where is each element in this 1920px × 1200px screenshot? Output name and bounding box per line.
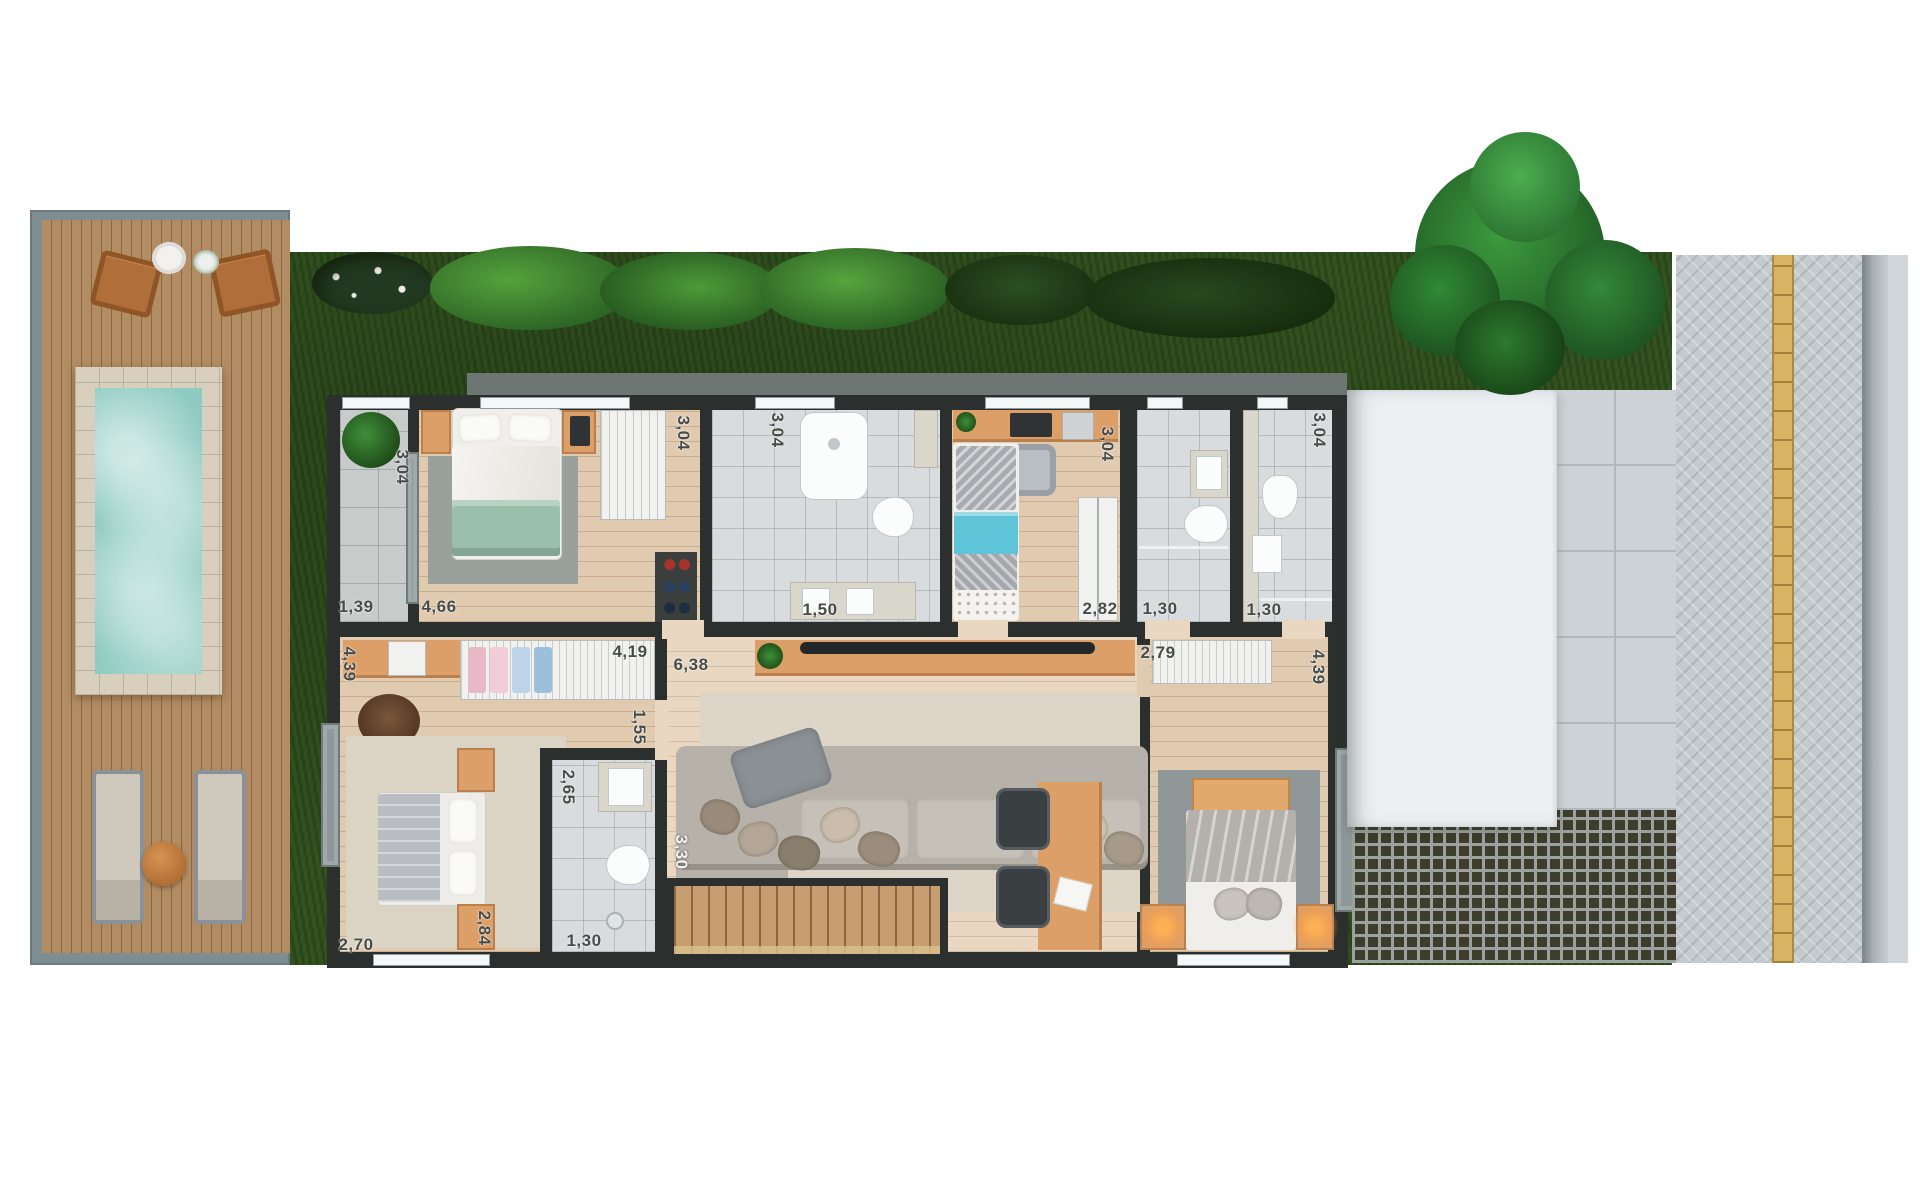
window-bath3 — [1147, 397, 1183, 409]
bush-leafy-2 — [600, 252, 780, 330]
dimension-label: 1,55 — [629, 709, 649, 744]
office-chair-top — [996, 788, 1050, 850]
door-gap-master-closet — [662, 620, 704, 639]
sidewalk — [1676, 255, 1862, 963]
master-pillow-left — [457, 413, 502, 443]
dimension-label: 1,30 — [566, 931, 601, 951]
street-curb — [1862, 255, 1888, 963]
bed3-deck-sliding-door — [321, 723, 340, 867]
window-ensuite — [755, 397, 835, 409]
kids-blanket-blue — [954, 512, 1018, 554]
tree-canopy-bottom — [1455, 300, 1565, 395]
hall-floor-patch — [655, 700, 669, 760]
door-gap-bath3 — [1145, 620, 1190, 639]
dimension-label: 2,65 — [558, 769, 578, 804]
closet-shirt-blue-1 — [512, 647, 530, 693]
bush-dark-2 — [1085, 258, 1335, 338]
closet-shirt-pink-1 — [468, 647, 486, 693]
bath3-shower-glass — [1139, 546, 1228, 549]
kids-blanket-dots — [955, 590, 1017, 620]
closet-shirt-pink-2 — [490, 647, 508, 693]
driveway — [1557, 390, 1676, 810]
bed3-pillow-bottom — [448, 850, 478, 896]
closet-shirt-blue-2 — [534, 647, 552, 693]
tree-canopy-top — [1470, 132, 1580, 242]
ensuite-sink-right — [846, 588, 874, 615]
ensuite-niche — [914, 410, 938, 468]
pool-water — [95, 388, 202, 674]
window-bath4 — [1257, 397, 1288, 409]
door-gap-kids — [958, 620, 1008, 639]
roof-eave — [467, 373, 1347, 397]
master-duvet — [452, 446, 560, 502]
suite-lamp-left-glow — [1138, 902, 1188, 952]
bath2-toilet — [606, 845, 650, 885]
shoe-rack — [655, 552, 697, 622]
lounger-right — [194, 770, 246, 924]
staircase-landing-edge — [674, 946, 940, 954]
dimension-label: 3,04 — [673, 415, 693, 450]
bed3-blanket-gray — [378, 794, 440, 902]
tactile-paving-strip — [1772, 255, 1794, 963]
bath3-toilet — [1184, 505, 1228, 543]
kids-bed-pillow — [956, 446, 1016, 510]
dimension-label: 3,04 — [392, 449, 412, 484]
master-nightstand-left — [421, 410, 451, 454]
kids-blanket-gray — [955, 554, 1017, 590]
bush-leafy-3 — [760, 248, 950, 330]
dimension-label: 1,30 — [1246, 600, 1281, 620]
garage-roof — [1347, 390, 1557, 827]
street-gutter — [1888, 255, 1908, 963]
deck-plate-small — [193, 250, 219, 274]
bed3-pillow-top — [448, 798, 478, 844]
kids-desk-box — [1062, 412, 1094, 440]
ensuite-shower-drain — [828, 438, 840, 450]
bath2-shower-head — [606, 912, 624, 930]
master-pillow-right — [507, 413, 552, 443]
office-chair-bottom — [996, 866, 1050, 928]
dimension-label: 6,38 — [673, 655, 708, 675]
dimension-label: 3,04 — [1309, 412, 1329, 447]
door-gap-bath4 — [1282, 620, 1325, 639]
bed3-vanity-cabinet — [388, 641, 426, 676]
dimension-label: 4,66 — [421, 597, 456, 617]
bath4-ledge — [1243, 410, 1259, 622]
dimension-label: 2,84 — [474, 910, 494, 945]
dimension-label: 4,39 — [339, 646, 359, 681]
suite-headboard — [1192, 778, 1290, 812]
ensuite-toilet — [872, 497, 914, 537]
dimension-label: 3,04 — [1097, 426, 1117, 461]
master-wardrobe — [600, 410, 666, 520]
bath2-sink — [608, 768, 644, 806]
bath4-sink — [1252, 535, 1282, 573]
dimension-label: 2,82 — [1082, 599, 1117, 619]
dimension-label: 4,39 — [1308, 649, 1328, 684]
master-blanket-green — [452, 500, 560, 556]
tv-panel — [800, 642, 1095, 654]
dimension-label: 2,79 — [1140, 643, 1175, 663]
staircase-treads — [674, 886, 940, 954]
suite-lamp-right-glow — [1292, 902, 1338, 952]
dimension-label: 1,50 — [802, 600, 837, 620]
window-suite-south — [1177, 954, 1290, 966]
kids-laptop — [1010, 413, 1052, 437]
window-balcony — [342, 397, 410, 409]
bed3-nightstand-top — [457, 748, 495, 792]
dimension-label: 4,19 — [612, 642, 647, 662]
dimension-label: 3,04 — [767, 412, 787, 447]
ensuite-shower-tray — [800, 412, 868, 500]
bush-dark-1 — [945, 255, 1095, 325]
kids-desk-plant — [956, 412, 976, 432]
deck-plate-large — [152, 242, 186, 274]
window-master — [480, 397, 630, 409]
dimension-label: 1,39 — [338, 597, 373, 617]
floor-plan-canvas: 3,04 1,39 4,66 3,04 3,04 1,50 3,04 2,82 … — [0, 0, 1920, 1200]
sideboard-plant — [757, 643, 783, 669]
bush-dark-flowering — [312, 252, 432, 314]
master-laptop — [570, 416, 590, 446]
grass-paver-lattice — [1352, 808, 1676, 963]
window-bed3-south — [373, 954, 490, 966]
lounger-left — [92, 770, 144, 924]
deck-side-table — [142, 842, 186, 886]
dimension-label: 2,70 — [338, 935, 373, 955]
dimension-label: 1,30 — [1142, 599, 1177, 619]
bath3-sink — [1196, 456, 1222, 490]
dimension-label: 3,30 — [671, 834, 691, 869]
window-kids — [985, 397, 1090, 409]
suite-duvet-gray — [1186, 810, 1296, 882]
